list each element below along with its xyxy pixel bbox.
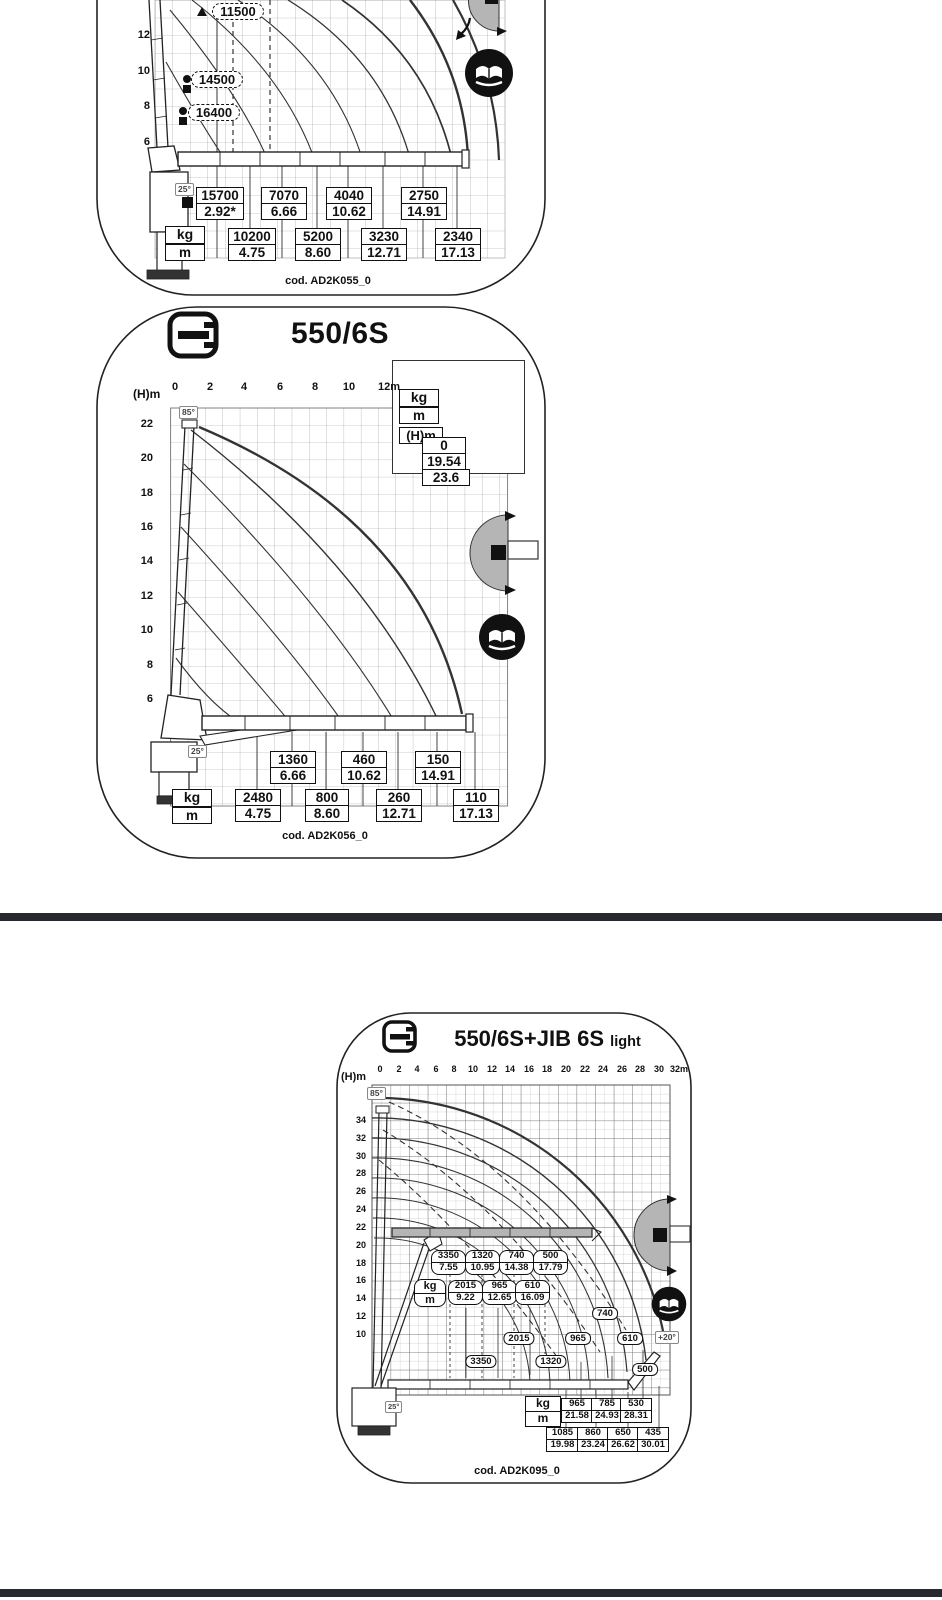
- load-reach-box: 1085 19.98: [546, 1427, 579, 1452]
- load-reach-box: 460 10.62: [341, 751, 387, 784]
- legend-unit-box: kg m: [399, 389, 439, 424]
- load-reach-bubble: 2015 9.22: [448, 1280, 483, 1305]
- y-axis-tick: 8: [123, 659, 153, 671]
- x-axis-tick: 0: [172, 381, 178, 393]
- unit-box: kg m: [165, 226, 205, 261]
- x-axis-tick: 0: [377, 1064, 382, 1074]
- y-axis-tick: 6: [120, 136, 150, 148]
- section-divider: [0, 913, 942, 921]
- effer-logo-icon: [170, 314, 216, 356]
- y-axis-tick: 26: [338, 1186, 366, 1196]
- book-icon: [465, 49, 513, 97]
- curve-load-tag: 500: [632, 1363, 658, 1376]
- load-reach-box: 7070 6.66: [261, 187, 307, 220]
- x-axis-tick: 4: [414, 1064, 419, 1074]
- y-axis-tick: 32: [338, 1133, 366, 1143]
- x-axis-tick: 22: [580, 1064, 590, 1074]
- winch-load-label: 11500: [212, 3, 264, 20]
- unit-box: kg m: [172, 789, 212, 824]
- load-reach-box: 110 17.13: [453, 789, 499, 822]
- y-axis-tick: 14: [338, 1293, 366, 1303]
- title-main: 550/6S+JIB 6S: [454, 1026, 604, 1051]
- x-axis-tick: 10: [343, 381, 355, 393]
- page-title: 550/6S: [240, 317, 440, 351]
- winch-load-label: 16400: [188, 104, 240, 121]
- x-axis-tick: 12: [487, 1064, 497, 1074]
- load-reach-box: 10200 4.75: [228, 228, 276, 261]
- title-suffix: light: [610, 1034, 641, 1050]
- load-reach-bubble: 500 17.79: [533, 1250, 568, 1275]
- unit-box: kg m: [414, 1279, 446, 1307]
- load-reach-box: 1360 6.66: [270, 751, 316, 784]
- load-reach-box: 260 12.71: [376, 789, 422, 822]
- load-reach-bubble: 1320 10.95: [465, 1250, 500, 1275]
- boom-angle-badge: 25°: [188, 745, 207, 758]
- y-axis-label: (H)m: [341, 1071, 366, 1083]
- load-reach-box: 860 23.24: [577, 1427, 609, 1452]
- square-marker-icon: [183, 85, 191, 93]
- y-axis-tick: 14: [123, 555, 153, 567]
- y-axis-tick: 22: [123, 418, 153, 430]
- y-axis-tick: 12: [123, 590, 153, 602]
- y-axis-tick: 18: [123, 487, 153, 499]
- x-axis-tick: 20: [561, 1064, 571, 1074]
- x-axis-tick: 6: [433, 1064, 438, 1074]
- y-axis-tick: 6: [123, 693, 153, 705]
- unit-box: kg m: [525, 1396, 561, 1427]
- y-axis-label: (H)m: [133, 387, 160, 401]
- y-axis-tick: 34: [338, 1115, 366, 1125]
- y-axis-tick: 8: [120, 100, 150, 112]
- section-divider: [0, 1589, 942, 1597]
- curve-load-tag: 3350: [465, 1355, 496, 1368]
- y-axis-tick: 12: [338, 1311, 366, 1321]
- load-reach-box: 800 8.60: [305, 789, 349, 822]
- max-angle-badge: 85°: [179, 406, 198, 419]
- y-axis-tick: 10: [338, 1329, 366, 1339]
- load-reach-box: 150 14.91: [415, 751, 461, 784]
- y-axis-tick: 20: [123, 452, 153, 464]
- x-axis-tick: 18: [542, 1064, 552, 1074]
- load-reach-box: 15700 2.92*: [196, 187, 244, 220]
- load-reach-box: 785 24.93: [591, 1398, 623, 1423]
- load-reach-bubble: 740 14.38: [499, 1250, 534, 1275]
- diagram-code: cod. AD2K095_0: [474, 1465, 560, 1477]
- y-axis-tick: 20: [338, 1240, 366, 1250]
- x-axis-tick: 2: [396, 1064, 401, 1074]
- x-axis-tick: 10: [468, 1064, 478, 1074]
- grid-jib: [372, 1085, 670, 1395]
- load-reach-box: 965 21.58: [561, 1398, 593, 1423]
- load-reach-box: 2340 17.13: [435, 228, 481, 261]
- boom-angle-badge: 25°: [385, 1401, 402, 1413]
- y-axis-tick: 28: [338, 1168, 366, 1178]
- x-axis-tick: 8: [451, 1064, 456, 1074]
- circle-marker-icon: [179, 107, 187, 115]
- book-icon: [652, 1287, 687, 1322]
- x-axis-tick: 28: [635, 1064, 645, 1074]
- load-reach-box: 3230 12.71: [361, 228, 407, 261]
- y-axis-tick: 14: [120, 0, 150, 3]
- x-axis-tick: 24: [598, 1064, 608, 1074]
- load-reach-box: 435 30.01: [637, 1427, 669, 1452]
- y-axis-tick: 30: [338, 1151, 366, 1161]
- legend-max-reach-box: 0 19.54: [422, 437, 466, 470]
- x-axis-tick: 8: [312, 381, 318, 393]
- circle-marker-icon: [183, 75, 191, 83]
- x-axis-tick: 16: [524, 1064, 534, 1074]
- x-axis-tick: 2: [207, 381, 213, 393]
- load-reach-box: 4040 10.62: [326, 187, 372, 220]
- curve-load-tag: 2015: [503, 1332, 534, 1345]
- y-axis-tick: 16: [123, 521, 153, 533]
- y-axis-tick: 22: [338, 1222, 366, 1232]
- curve-load-tag: 740: [592, 1307, 618, 1320]
- square-marker-icon: [179, 117, 187, 125]
- book-icon: [479, 614, 525, 660]
- y-axis-tick: 10: [120, 65, 150, 77]
- load-reach-bubble: 965 12.65: [482, 1280, 517, 1305]
- jib-angle-badge: +20°: [655, 1331, 679, 1344]
- diagram-code: cod. AD2K056_0: [282, 830, 368, 842]
- load-reach-box: 530 28.31: [620, 1398, 652, 1423]
- load-reach-box: 2480 4.75: [235, 789, 281, 822]
- curve-load-tag: 965: [565, 1332, 591, 1345]
- max-angle-badge: 85°: [367, 1087, 386, 1100]
- load-reach-box: 5200 8.60: [295, 228, 341, 261]
- load-reach-bubble: 610 16.09: [515, 1280, 550, 1305]
- square-marker-icon: [182, 197, 193, 208]
- x-axis-tick: 14: [505, 1064, 515, 1074]
- x-axis-tick: 32m: [670, 1064, 688, 1074]
- y-axis-tick: 18: [338, 1258, 366, 1268]
- y-axis-tick: 12: [120, 29, 150, 41]
- x-axis-tick: 30: [654, 1064, 664, 1074]
- x-axis-tick: 26: [617, 1064, 627, 1074]
- y-axis-tick: 10: [123, 624, 153, 636]
- load-reach-box: 650 26.62: [607, 1427, 639, 1452]
- page-title: 550/6S+JIB 6S light: [420, 1026, 675, 1052]
- x-axis-tick: 12m: [378, 381, 400, 393]
- catalog-page: 14 12 10 8 6 11500 14500 16400 25° 15700…: [0, 0, 942, 1600]
- load-reach-box: 2750 14.91: [401, 187, 447, 220]
- curve-load-tag: 1320: [535, 1355, 566, 1368]
- effer-logo-icon: [384, 1022, 415, 1051]
- x-axis-tick: 4: [241, 381, 247, 393]
- winch-load-label: 14500: [191, 71, 243, 88]
- x-axis-tick: 6: [277, 381, 283, 393]
- diagram-code: cod. AD2K055_0: [285, 275, 371, 287]
- y-axis-tick: 16: [338, 1275, 366, 1285]
- boom-angle-badge: 25°: [175, 183, 194, 196]
- curve-load-tag: 610: [617, 1332, 643, 1345]
- y-axis-tick: 24: [338, 1204, 366, 1214]
- legend-max-height-box: 23.6: [422, 469, 470, 486]
- load-reach-bubble: 3350 7.55: [431, 1250, 466, 1275]
